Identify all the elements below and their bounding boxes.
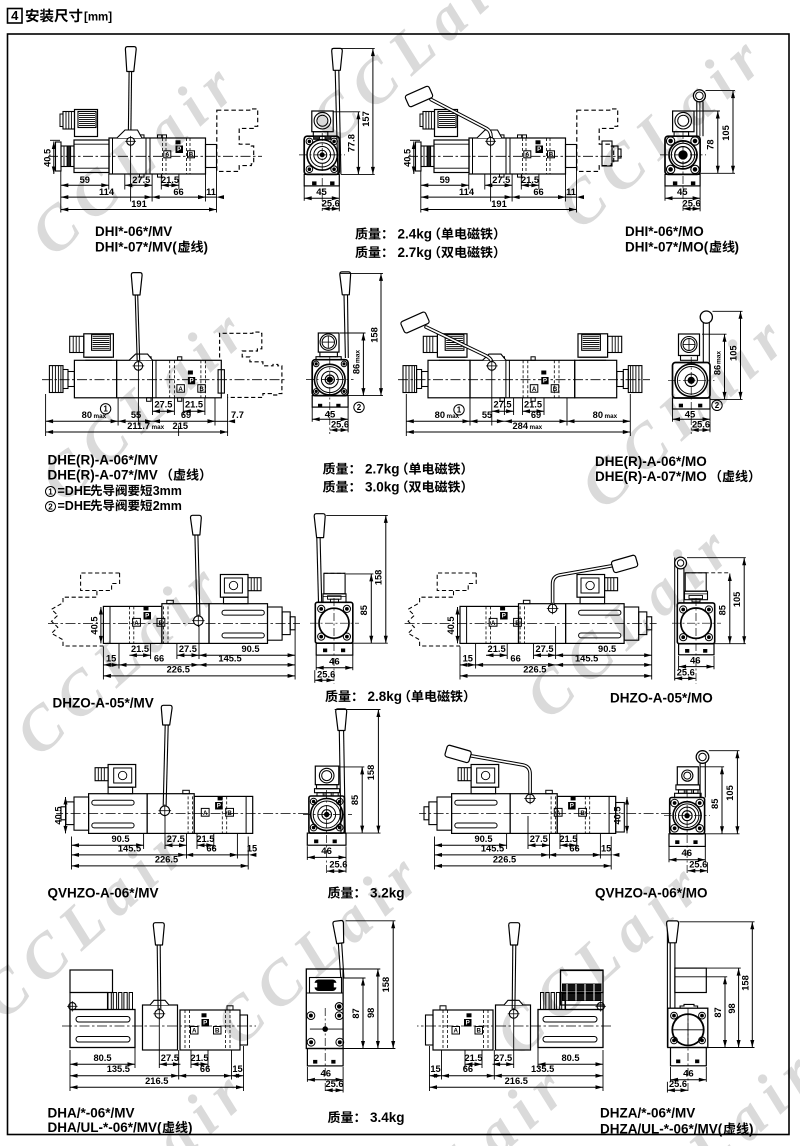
svg-text:25.6: 25.6 — [692, 420, 710, 430]
svg-text:27.5: 27.5 — [132, 175, 150, 185]
svg-text:55: 55 — [131, 410, 141, 420]
svg-text:15: 15 — [430, 1064, 440, 1074]
svg-text:25.6: 25.6 — [689, 860, 707, 870]
svg-text:55: 55 — [482, 410, 492, 420]
svg-text:): ) — [188, 1120, 193, 1135]
svg-text:2: 2 — [357, 403, 362, 412]
svg-text:1: 1 — [48, 487, 53, 496]
svg-text:15: 15 — [106, 653, 116, 663]
svg-text:80: 80 — [435, 410, 445, 420]
svg-text:85: 85 — [350, 795, 360, 805]
svg-text:): ) — [204, 240, 209, 255]
svg-text:158: 158 — [374, 570, 384, 586]
svg-text:3.0kg: 3.0kg — [365, 480, 400, 495]
svg-text:P: P — [189, 377, 193, 384]
svg-text:85: 85 — [359, 605, 369, 615]
svg-text:QVHZO-A-06*/MO: QVHZO-A-06*/MO — [595, 886, 708, 901]
svg-text:145.5: 145.5 — [481, 843, 504, 853]
svg-text:A: A — [491, 620, 496, 627]
svg-text:66: 66 — [154, 653, 164, 663]
svg-text:80: 80 — [593, 410, 603, 420]
svg-text:80.5: 80.5 — [93, 1053, 111, 1063]
svg-text:A: A — [178, 386, 183, 393]
svg-text:114: 114 — [99, 187, 115, 197]
svg-text:85: 85 — [710, 799, 720, 809]
svg-text:226.5: 226.5 — [167, 664, 190, 674]
svg-text:158: 158 — [369, 327, 379, 343]
svg-text:QVHZO-A-06*/MV: QVHZO-A-06*/MV — [48, 886, 159, 901]
svg-text:66: 66 — [533, 187, 543, 197]
svg-text:21.5: 21.5 — [190, 1053, 208, 1063]
svg-text:2.4kg: 2.4kg — [398, 227, 433, 242]
svg-text:145.5: 145.5 — [118, 843, 141, 853]
svg-text:15: 15 — [232, 1064, 242, 1074]
svg-text:21.5: 21.5 — [559, 834, 577, 844]
svg-text:114: 114 — [459, 187, 475, 197]
svg-text:158: 158 — [381, 977, 391, 993]
svg-text:226.5: 226.5 — [523, 664, 546, 674]
svg-text:A: A — [192, 1028, 197, 1035]
svg-text:211.7: 211.7 — [127, 421, 150, 431]
svg-text:46: 46 — [321, 1068, 332, 1079]
svg-text:40.5: 40.5 — [90, 616, 100, 634]
svg-text:46: 46 — [329, 656, 340, 667]
svg-text:27.5: 27.5 — [167, 834, 185, 844]
svg-text:P: P — [217, 803, 221, 810]
svg-text:27.5: 27.5 — [535, 644, 553, 654]
svg-text:A: A — [532, 386, 537, 393]
svg-text:2.8kg: 2.8kg — [368, 689, 403, 704]
svg-text:69: 69 — [531, 410, 541, 420]
svg-text:105: 105 — [732, 592, 742, 608]
svg-text:27.5: 27.5 — [492, 175, 510, 185]
svg-text:B: B — [549, 151, 554, 158]
svg-text:DHZA/*-06*/MV: DHZA/*-06*/MV — [600, 1106, 695, 1121]
svg-text:105: 105 — [725, 785, 735, 801]
svg-text:284: 284 — [512, 421, 528, 431]
svg-text:DHZO-A-05*/MV: DHZO-A-05*/MV — [53, 696, 154, 711]
svg-text:4: 4 — [11, 8, 19, 23]
svg-text:216.5: 216.5 — [145, 1076, 168, 1086]
svg-text:40.5: 40.5 — [403, 149, 413, 167]
svg-text:2: 2 — [48, 502, 53, 511]
svg-text:max: max — [530, 424, 543, 431]
svg-text:DHE(R)-A-07*/MV: DHE(R)-A-07*/MV — [48, 468, 158, 483]
svg-text:DHI*-06*/MV: DHI*-06*/MV — [95, 224, 172, 239]
svg-text:66: 66 — [173, 187, 183, 197]
svg-text:105: 105 — [729, 345, 739, 361]
svg-text:191: 191 — [131, 199, 147, 209]
svg-text:B: B — [580, 810, 585, 817]
svg-text:40.5: 40.5 — [53, 806, 63, 824]
svg-text:158: 158 — [740, 975, 750, 991]
svg-text:B: B — [477, 1028, 482, 1035]
svg-text:46: 46 — [321, 846, 332, 857]
svg-text:B: B — [199, 386, 204, 393]
svg-text:max: max — [354, 350, 361, 364]
svg-text:DHA/*-06*/MV: DHA/*-06*/MV — [48, 1106, 135, 1121]
svg-text:A: A — [203, 810, 208, 817]
svg-text:DHZO-A-05*/MO: DHZO-A-05*/MO — [610, 691, 713, 706]
svg-text:3mm: 3mm — [153, 484, 182, 498]
svg-text:77.8: 77.8 — [347, 134, 357, 152]
svg-text:2.7kg: 2.7kg — [398, 245, 433, 260]
svg-text:87: 87 — [713, 1007, 723, 1017]
svg-text:DHE(R)-A-06*/MV: DHE(R)-A-06*/MV — [48, 453, 158, 468]
svg-text:135.5: 135.5 — [107, 1064, 130, 1074]
svg-text:max: max — [152, 424, 165, 431]
svg-text:90.5: 90.5 — [598, 644, 616, 654]
svg-text:25.6: 25.6 — [325, 1079, 343, 1089]
svg-text:max: max — [605, 413, 618, 420]
svg-text:A: A — [454, 1028, 459, 1035]
svg-text:27.5: 27.5 — [493, 400, 511, 410]
svg-text:P: P — [543, 377, 547, 384]
svg-text:69: 69 — [181, 410, 191, 420]
svg-text:P: P — [177, 146, 181, 153]
svg-text:max: max — [447, 413, 460, 420]
svg-text:25.6: 25.6 — [329, 860, 347, 870]
svg-text:DHE(R)-A-07*/MO: DHE(R)-A-07*/MO — [595, 469, 707, 484]
svg-text:40.5: 40.5 — [446, 616, 456, 634]
svg-text:25.6: 25.6 — [322, 198, 340, 208]
svg-text:40.5: 40.5 — [43, 149, 53, 167]
svg-text:max: max — [94, 413, 107, 420]
svg-text:B: B — [553, 386, 558, 393]
svg-text:145.5: 145.5 — [218, 653, 241, 663]
svg-text:B: B — [189, 151, 194, 158]
svg-text:145.5: 145.5 — [575, 653, 598, 663]
svg-text:B: B — [215, 1028, 220, 1035]
svg-text:45: 45 — [316, 187, 327, 198]
svg-text:21.5: 21.5 — [521, 175, 539, 185]
svg-text:25.6: 25.6 — [683, 198, 701, 208]
svg-text:66: 66 — [463, 1064, 473, 1074]
svg-text:2.7kg: 2.7kg — [365, 462, 400, 477]
svg-text:7.7: 7.7 — [231, 410, 244, 420]
svg-text:46: 46 — [682, 848, 693, 859]
svg-text:25.6: 25.6 — [677, 667, 695, 677]
svg-text:DHI*-06*/MO: DHI*-06*/MO — [625, 224, 704, 239]
svg-text:21.5: 21.5 — [131, 644, 149, 654]
svg-text:P: P — [502, 613, 506, 620]
svg-text:158: 158 — [366, 765, 376, 781]
svg-text:B: B — [227, 810, 232, 817]
svg-text:59: 59 — [80, 175, 90, 185]
svg-text:=DHE: =DHE — [58, 484, 92, 498]
svg-text:15: 15 — [247, 843, 257, 853]
svg-text:DHI*-07*/MO(: DHI*-07*/MO( — [625, 240, 709, 255]
svg-text:90.5: 90.5 — [111, 834, 129, 844]
svg-text:45: 45 — [685, 409, 696, 420]
svg-text:85: 85 — [718, 605, 728, 615]
svg-text:80.5: 80.5 — [561, 1053, 579, 1063]
svg-text:27.5: 27.5 — [530, 834, 548, 844]
svg-text:A: A — [165, 151, 170, 158]
svg-text:191: 191 — [491, 199, 507, 209]
svg-text:=DHE: =DHE — [58, 499, 92, 513]
svg-text:2mm: 2mm — [153, 499, 182, 513]
svg-text:226.5: 226.5 — [155, 854, 178, 864]
svg-text:80: 80 — [82, 410, 92, 420]
svg-text:27.5: 27.5 — [179, 644, 197, 654]
svg-text:46: 46 — [690, 655, 701, 666]
svg-text:11: 11 — [206, 187, 216, 197]
svg-text:P: P — [537, 146, 541, 153]
svg-text:): ) — [749, 1122, 754, 1137]
svg-text:21.5: 21.5 — [524, 400, 542, 410]
svg-text:25.6: 25.6 — [317, 669, 335, 679]
svg-text:DHZA/UL-*-06*/MV(: DHZA/UL-*-06*/MV( — [600, 1122, 723, 1137]
svg-text:25.6: 25.6 — [669, 1079, 687, 1089]
svg-text:15: 15 — [463, 653, 473, 663]
svg-text:A: A — [525, 151, 530, 158]
svg-text:[mm]: [mm] — [84, 12, 112, 24]
svg-text:59: 59 — [440, 175, 450, 185]
svg-text:66: 66 — [206, 843, 216, 853]
svg-text:27.5: 27.5 — [494, 1053, 512, 1063]
svg-text:DHA/UL-*-06*/MV(: DHA/UL-*-06*/MV( — [48, 1120, 163, 1135]
svg-text:27.5: 27.5 — [161, 1053, 179, 1063]
svg-text:2: 2 — [715, 401, 720, 410]
svg-text:86: 86 — [713, 365, 723, 375]
svg-text:215: 215 — [173, 421, 189, 431]
svg-text:25.6: 25.6 — [331, 420, 349, 430]
svg-text:90.5: 90.5 — [241, 644, 259, 654]
svg-text:max: max — [716, 351, 723, 365]
svg-text:21.5: 21.5 — [488, 644, 506, 654]
svg-text:P: P — [570, 803, 574, 810]
svg-text:P: P — [466, 1020, 470, 1027]
svg-text:45: 45 — [325, 409, 336, 420]
svg-text:P: P — [145, 613, 149, 620]
svg-text:21.5: 21.5 — [185, 400, 203, 410]
svg-text:DHE(R)-A-06*/MO: DHE(R)-A-06*/MO — [595, 454, 707, 469]
svg-text:40.5: 40.5 — [613, 806, 623, 824]
svg-text:11: 11 — [566, 187, 576, 197]
svg-text:27.5: 27.5 — [154, 400, 172, 410]
svg-text:90.5: 90.5 — [474, 834, 492, 844]
svg-text:3.4kg: 3.4kg — [370, 1110, 405, 1125]
svg-text:66: 66 — [569, 843, 579, 853]
svg-text:46: 46 — [683, 1068, 694, 1079]
svg-text:157: 157 — [361, 111, 371, 127]
svg-text:15: 15 — [601, 843, 611, 853]
svg-text:B: B — [159, 620, 164, 627]
svg-text:45: 45 — [677, 187, 688, 198]
svg-text:DHI*-07*/MV(: DHI*-07*/MV( — [95, 240, 177, 255]
svg-text:98: 98 — [727, 1003, 737, 1013]
svg-text:78: 78 — [705, 139, 715, 149]
svg-text:66: 66 — [510, 653, 520, 663]
svg-text:216.5: 216.5 — [505, 1076, 528, 1086]
svg-text:21.5: 21.5 — [161, 175, 179, 185]
svg-text:A: A — [134, 620, 139, 627]
svg-text:P: P — [203, 1020, 207, 1027]
svg-text:86: 86 — [351, 364, 361, 374]
svg-text:105: 105 — [721, 125, 731, 141]
svg-text:98: 98 — [366, 1008, 376, 1018]
svg-text:66: 66 — [200, 1064, 210, 1074]
svg-text:87: 87 — [351, 1008, 361, 1018]
svg-text:B: B — [515, 620, 520, 627]
svg-text:226.5: 226.5 — [493, 854, 516, 864]
svg-text:21.5: 21.5 — [464, 1053, 482, 1063]
svg-text:3.2kg: 3.2kg — [370, 886, 405, 901]
svg-text:21.5: 21.5 — [196, 834, 214, 844]
svg-text:135.5: 135.5 — [531, 1064, 554, 1074]
svg-text:): ) — [735, 240, 740, 255]
